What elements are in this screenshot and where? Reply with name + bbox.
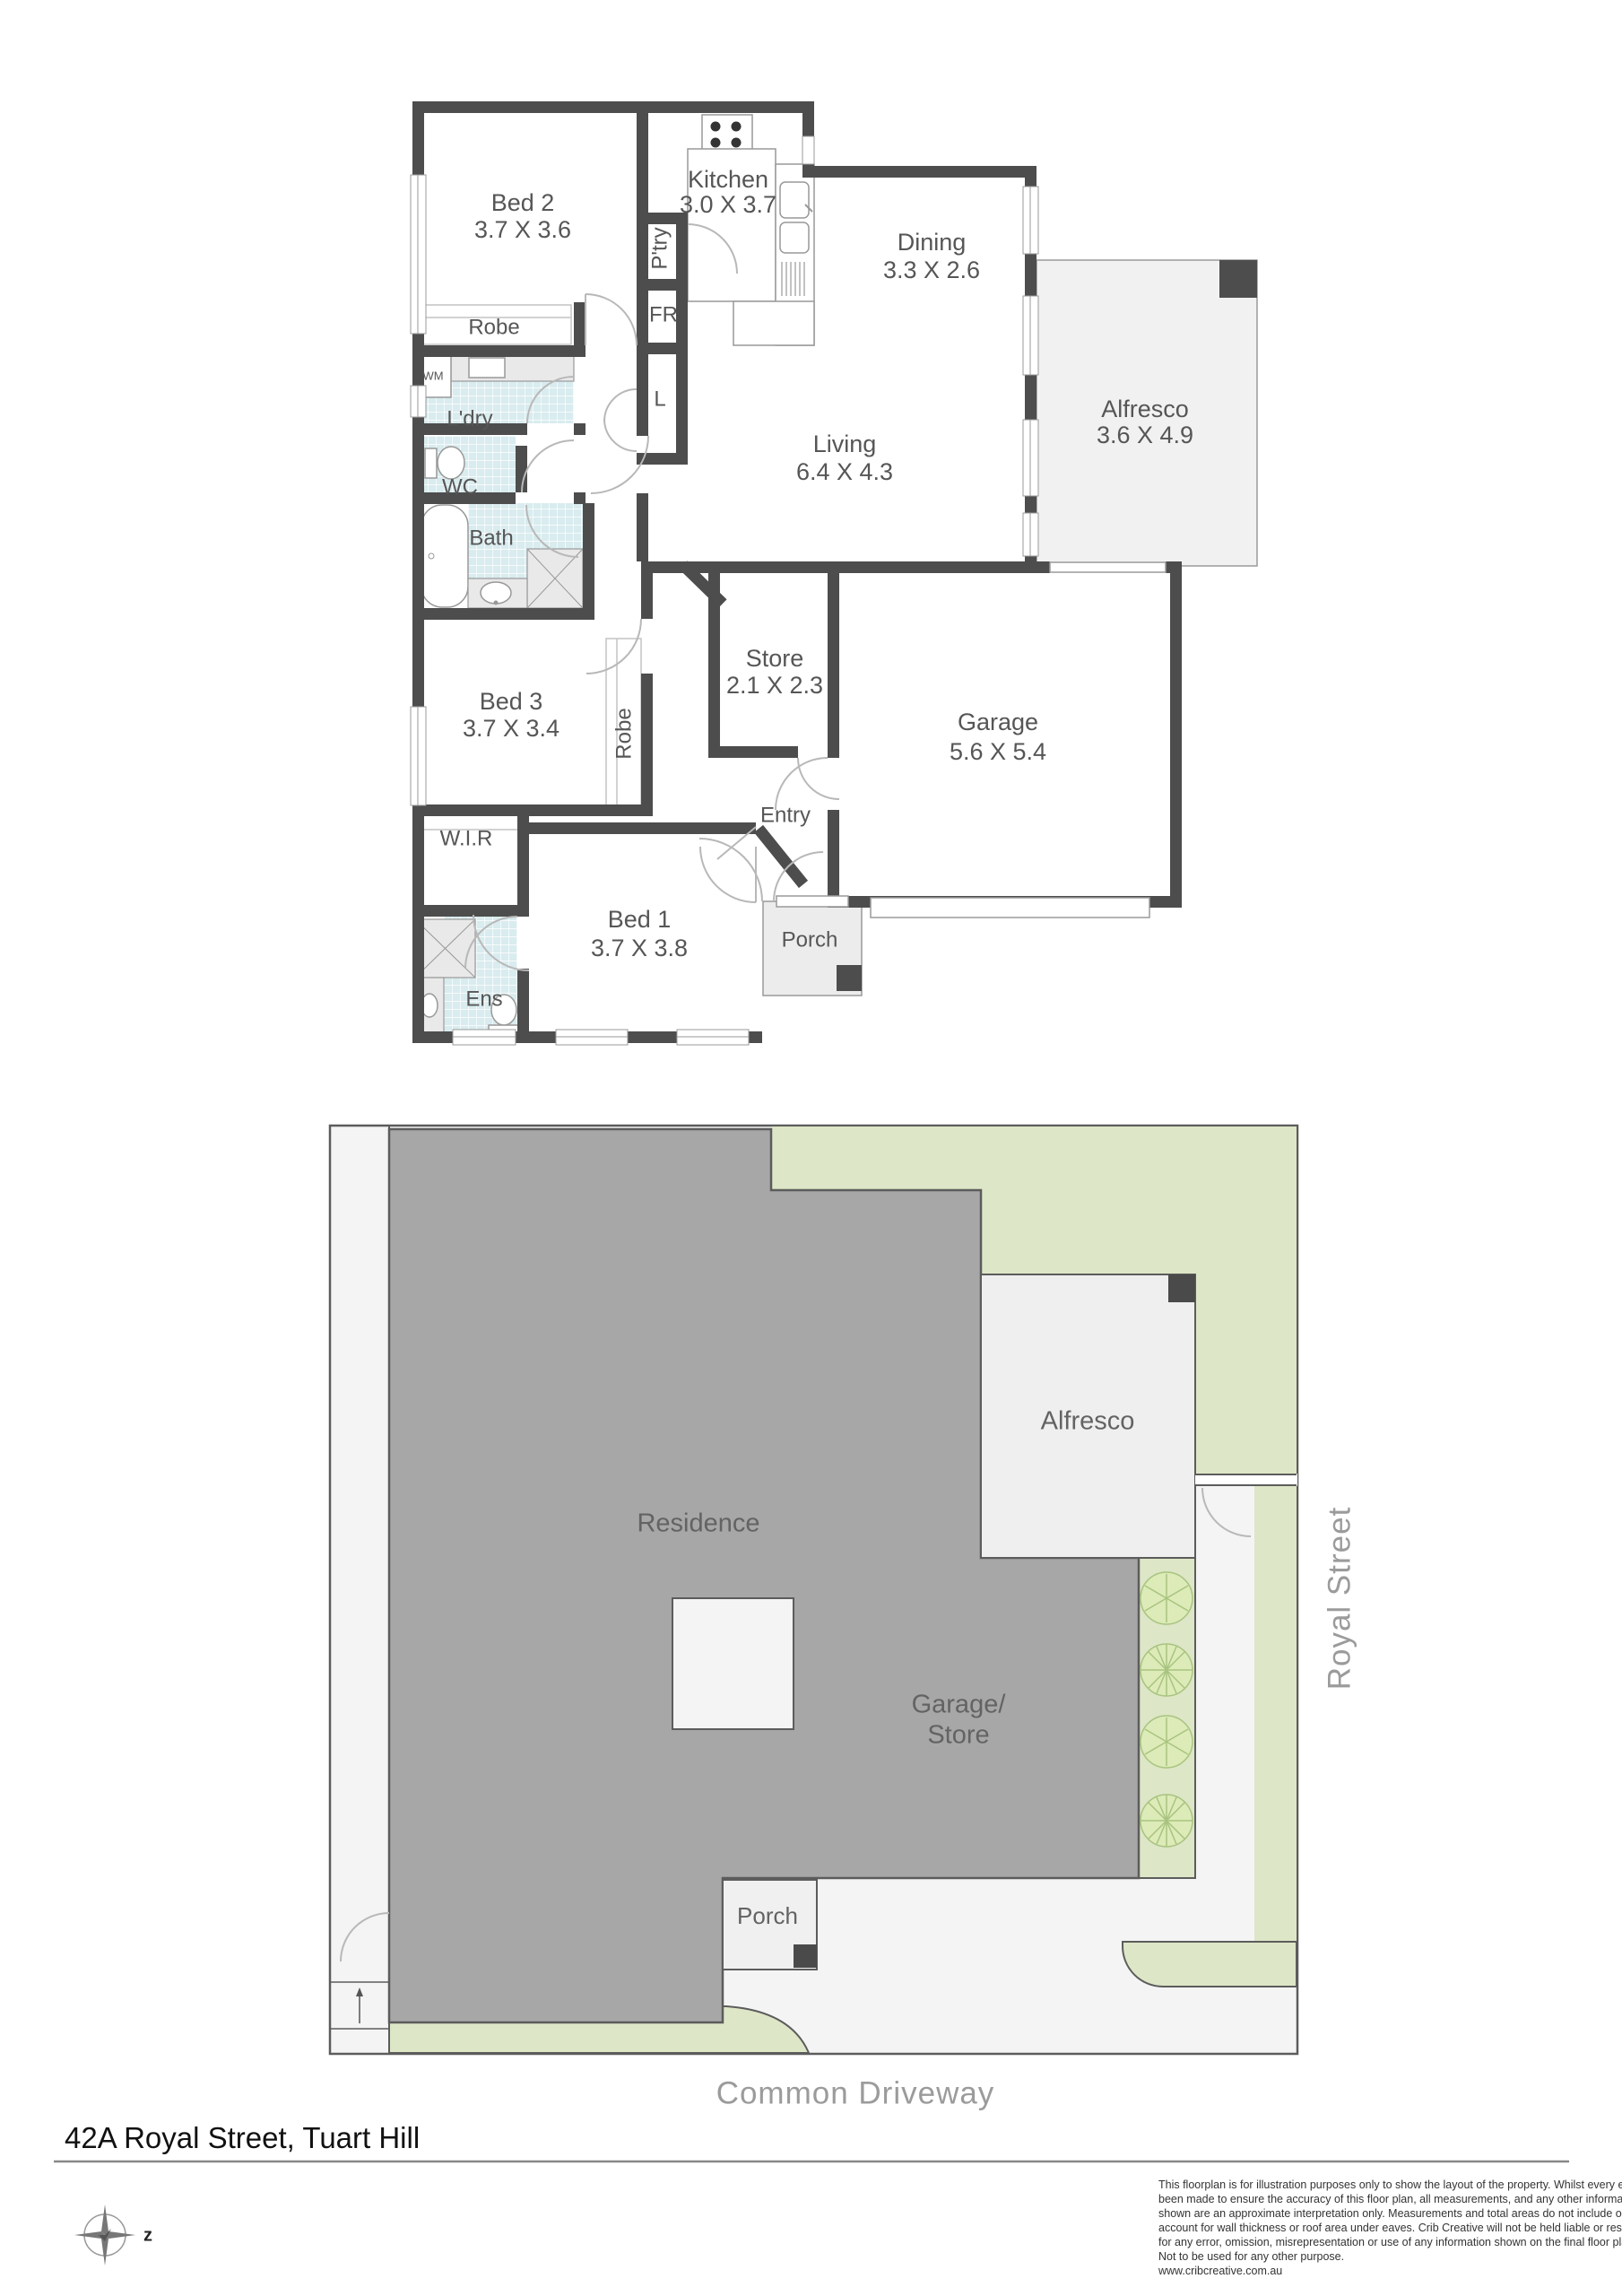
dining-label: Dining: [898, 229, 967, 256]
wc-label: WC: [442, 474, 478, 499]
fridge-label: FR: [649, 302, 678, 326]
tree-icon: [1141, 1644, 1193, 1696]
pantry-label: P'try: [647, 227, 672, 269]
disclaimer-line: been made to ensure the accuracy of this…: [1158, 2193, 1622, 2205]
floorplan-canvas: Bed 2 3.7 X 3.6 Kitchen 3.0 X 3.7 Dining…: [0, 0, 1622, 2296]
dining-dims: 3.3 X 2.6: [883, 257, 980, 283]
entry-label: Entry: [760, 803, 811, 827]
living-label: Living: [813, 430, 877, 457]
residence-label: Residence: [637, 1509, 759, 1538]
address-text: 42A Royal Street, Tuart Hill: [65, 2121, 420, 2154]
bed1-dims: 3.7 X 3.8: [591, 935, 688, 961]
garage-dims: 5.6 X 5.4: [950, 738, 1046, 765]
disclaimer-line: Not to be used for any other purpose.: [1158, 2250, 1344, 2263]
robe-bed2-label: Robe: [468, 315, 519, 339]
bath-label: Bath: [469, 526, 513, 550]
alfresco-dims: 3.6 X 4.9: [1097, 422, 1193, 448]
bed2-dims: 3.7 X 3.6: [474, 216, 571, 243]
site-plan: Residence Alfresco Garage/ Store Porch R…: [330, 1126, 1357, 2110]
disclaimer-line: This floorplan is for illustration purpo…: [1158, 2179, 1622, 2191]
porch-post: [837, 965, 862, 991]
store-dims: 2.1 X 2.3: [726, 672, 823, 699]
compass-north-letter: z: [143, 2225, 152, 2245]
tree-icon: [1141, 1716, 1193, 1768]
alfresco-label: Alfresco: [1101, 396, 1189, 422]
laundry-label: L'dry: [447, 406, 492, 430]
disclaimer-line: www.cribcreative.com.au: [1158, 2265, 1282, 2277]
tree-icon: [1141, 1572, 1193, 1624]
kitchen-dims: 3.0 X 3.7: [680, 191, 776, 218]
entry-court-notch: [672, 1598, 794, 1729]
garage-store-label-1: Garage/: [912, 1691, 1007, 1719]
linen-label: L: [654, 387, 665, 411]
disclaimer-line: shown are an approximate interpretation …: [1158, 2207, 1622, 2220]
porch-fp-label: Porch: [782, 927, 838, 952]
garage-label: Garage: [958, 709, 1038, 735]
floorplan-page: Bed 2 3.7 X 3.6 Kitchen 3.0 X 3.7 Dining…: [0, 0, 1622, 2296]
royal-street-label: Royal Street: [1322, 1507, 1357, 1691]
footer: 42A Royal Street, Tuart Hill z This floo…: [54, 2121, 1622, 2277]
garage-store-label-2: Store: [927, 1721, 989, 1750]
living-dims: 6.4 X 4.3: [796, 458, 893, 485]
site-porch-post: [794, 1944, 817, 1968]
site-porch-label: Porch: [737, 1902, 798, 1929]
wm-label: WM: [422, 369, 443, 382]
bed2-label: Bed 2: [491, 189, 555, 216]
common-driveway-label: Common Driveway: [716, 2075, 995, 2110]
floor-plan: Bed 2 3.7 X 3.6 Kitchen 3.0 X 3.7 Dining…: [411, 101, 1257, 1045]
bed1-label: Bed 1: [608, 906, 672, 933]
bed3-dims: 3.7 X 3.4: [463, 715, 559, 742]
store-label: Store: [746, 645, 804, 672]
site-alfresco-label: Alfresco: [1041, 1407, 1135, 1436]
bed3-label: Bed 3: [480, 688, 543, 715]
compass-icon: z: [74, 2205, 152, 2266]
robe-bed3-label: Robe: [612, 708, 636, 759]
tree-icon: [1141, 1795, 1193, 1847]
site-alfresco-post: [1168, 1274, 1195, 1302]
disclaimer-line: account for wall thickness or roof area …: [1158, 2222, 1622, 2234]
disclaimer-line: for any error, omission, misrepresentati…: [1158, 2236, 1622, 2248]
kitchen-label: Kitchen: [688, 166, 768, 193]
alfresco-post: [1219, 260, 1257, 298]
disclaimer: This floorplan is for illustration purpo…: [1158, 2179, 1622, 2277]
ens-label: Ens: [465, 987, 502, 1011]
wir-label: W.I.R: [440, 826, 493, 850]
